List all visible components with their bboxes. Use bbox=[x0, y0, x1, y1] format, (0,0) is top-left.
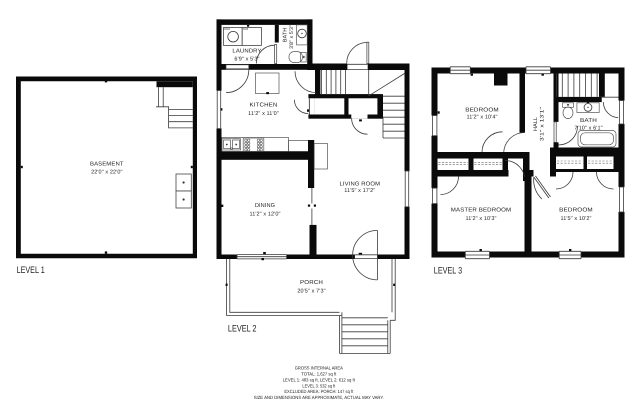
svg-text:11'5" x 17'2": 11'5" x 17'2" bbox=[344, 188, 375, 194]
svg-text:LEVEL 3: LEVEL 3 bbox=[434, 264, 462, 275]
svg-text:11'2" x 10'3": 11'2" x 10'3" bbox=[465, 216, 496, 222]
svg-text:BEDROOM: BEDROOM bbox=[559, 208, 593, 214]
svg-text:LEVEL 2: LEVEL 2 bbox=[228, 323, 257, 334]
svg-text:11'5" x 10'2": 11'5" x 10'2" bbox=[560, 216, 591, 222]
svg-text:GROSS INTERNAL AREA: GROSS INTERNAL AREA bbox=[295, 366, 344, 371]
svg-text:3'8" x 5'3": 3'8" x 5'3" bbox=[289, 25, 295, 49]
svg-text:22'0" x 22'0": 22'0" x 22'0" bbox=[91, 169, 122, 175]
svg-text:BATH: BATH bbox=[580, 118, 597, 124]
svg-text:6'9" x 5'3": 6'9" x 5'3" bbox=[234, 56, 259, 62]
svg-text:BASEMENT: BASEMENT bbox=[90, 162, 124, 168]
svg-text:11'2" x 11'0": 11'2" x 11'0" bbox=[248, 111, 279, 117]
svg-text:TOTAL: 1,627 sq ft: TOTAL: 1,627 sq ft bbox=[301, 372, 337, 377]
svg-text:BATH: BATH bbox=[283, 28, 289, 42]
svg-text:HALL: HALL bbox=[533, 117, 539, 131]
svg-text:3'1" x 13'1": 3'1" x 13'1" bbox=[539, 107, 545, 141]
svg-text:LIVING ROOM: LIVING ROOM bbox=[340, 181, 381, 187]
svg-text:KITCHEN: KITCHEN bbox=[250, 103, 278, 109]
svg-text:DINING: DINING bbox=[255, 203, 275, 209]
svg-text:11'2" x 10'4": 11'2" x 10'4" bbox=[466, 115, 497, 121]
svg-text:11'2" x 12'0": 11'2" x 12'0" bbox=[249, 212, 280, 218]
svg-text:MASTER BEDROOM: MASTER BEDROOM bbox=[451, 208, 512, 214]
svg-text:LEVEL 1: LEVEL 1 bbox=[17, 264, 45, 275]
svg-text:LEVEL 1: 483 sq ft, LEVEL 2: 6: LEVEL 1: 483 sq ft, LEVEL 2: 612 sq ft bbox=[283, 377, 356, 382]
svg-text:EXCLUDED AREA: PORCH: 147 sq f: EXCLUDED AREA: PORCH: 147 sq ft bbox=[284, 389, 354, 394]
svg-text:20'5" x 7'3": 20'5" x 7'3" bbox=[297, 288, 325, 294]
svg-text:LEVEL 3: 532 sq ft: LEVEL 3: 532 sq ft bbox=[302, 383, 335, 388]
svg-text:PORCH: PORCH bbox=[300, 280, 323, 286]
svg-text:LAUNDRY: LAUNDRY bbox=[232, 49, 261, 55]
svg-text:SIZE AND DIMENSIONS ARE APPROX: SIZE AND DIMENSIONS ARE APPROXIMATE, ACT… bbox=[254, 395, 384, 400]
svg-text:BEDROOM: BEDROOM bbox=[465, 108, 499, 114]
